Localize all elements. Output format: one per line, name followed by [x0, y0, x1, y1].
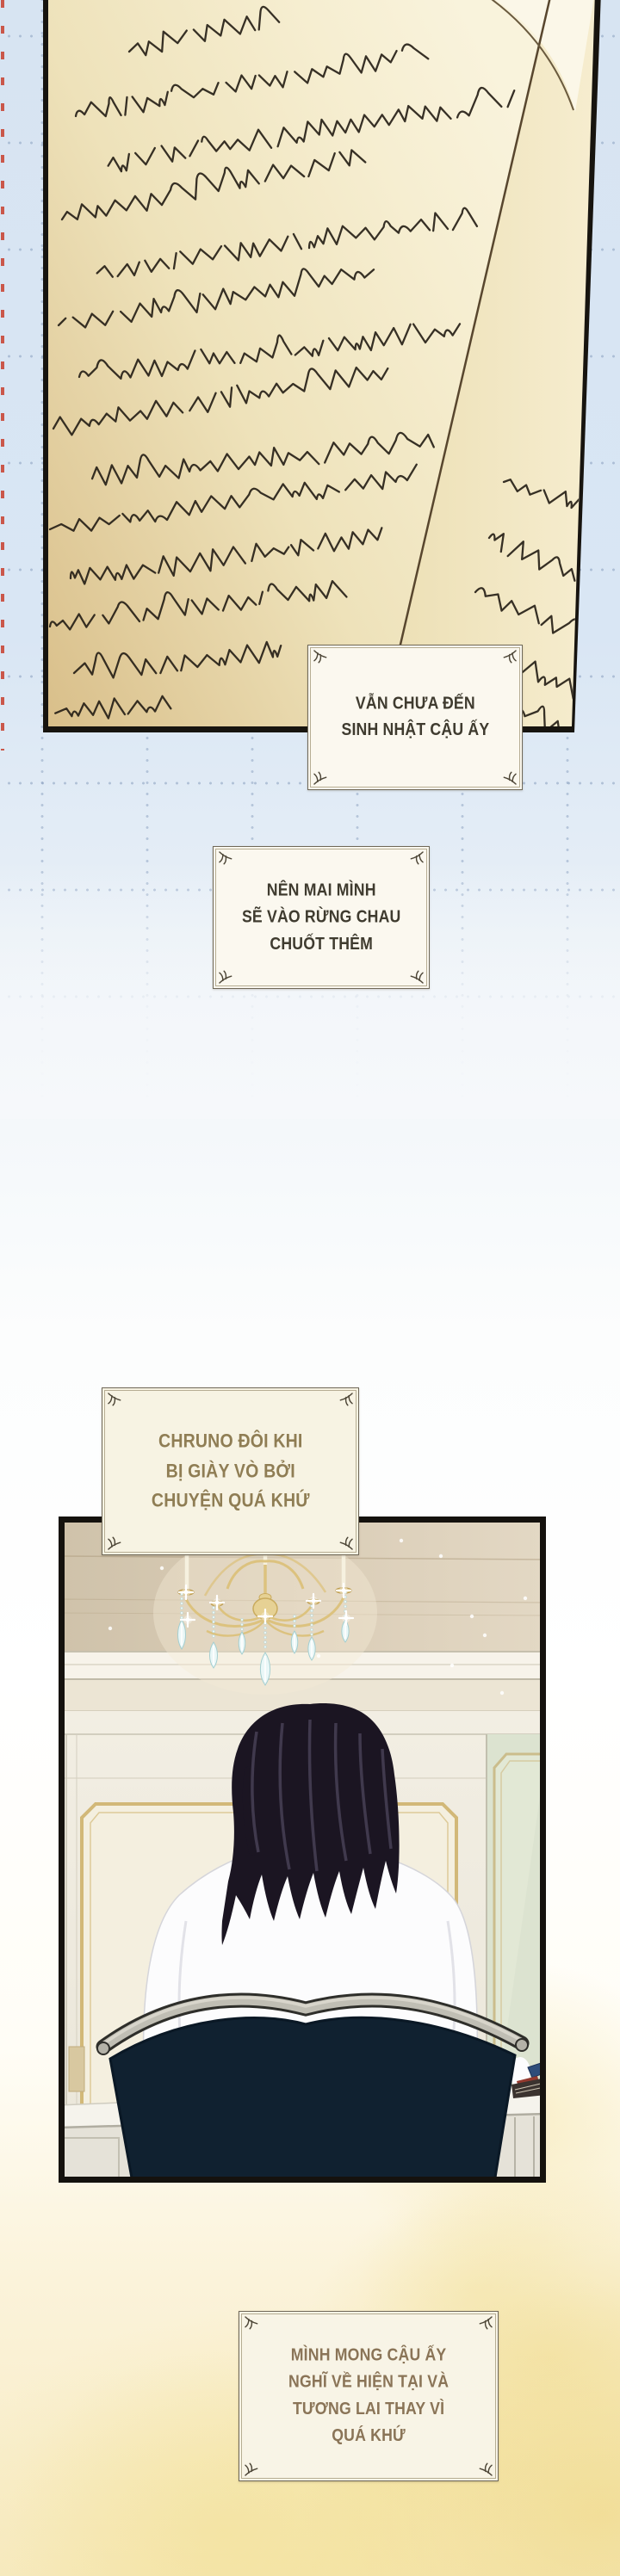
corner-flourish-icon — [218, 970, 232, 985]
caption-text: MÌNH MONG CẬU ẤY NGHĨ VỀ HIỆN TẠI VÀ TƯƠ… — [282, 2343, 455, 2450]
caption-text: NÊN MAI MÌNH SẼ VÀO RỪNG CHAU CHUỐT THÊM — [235, 877, 406, 958]
corner-flourish-icon — [339, 1536, 354, 1551]
room-illustration — [59, 1517, 546, 2183]
corner-flourish-icon — [479, 2315, 493, 2330]
corner-flourish-icon — [107, 1392, 121, 1406]
gold-pilaster — [69, 2047, 84, 2091]
caption-box-narration-1: CHRUNO ĐÔI KHI BỊ GIÀY VÒ BỞI CHUYỆN QUÁ… — [102, 1387, 359, 1555]
corner-flourish-icon — [339, 1392, 354, 1406]
corner-flourish-icon — [410, 970, 425, 985]
comic-page: VẪN CHƯA ĐẾN SINH NHẬT CẬU ẤY NÊN MAI MÌ… — [0, 0, 620, 2576]
corner-flourish-icon — [313, 649, 327, 664]
corner-flourish-icon — [313, 771, 327, 786]
corner-flourish-icon — [410, 850, 425, 865]
chandelier — [153, 1531, 377, 1695]
corner-flourish-icon — [503, 649, 518, 664]
caption-box-journal-1: VẪN CHƯA ĐẾN SINH NHẬT CẬU ẤY — [307, 645, 523, 790]
caption-box-narration-2: MÌNH MONG CẬU ẤY NGHĨ VỀ HIỆN TẠI VÀ TƯƠ… — [239, 2311, 499, 2481]
corner-flourish-icon — [244, 2462, 258, 2477]
caption-text: VẪN CHƯA ĐẾN SINH NHẬT CẬU ẤY — [335, 690, 496, 744]
comic-panel — [59, 1517, 546, 2183]
corner-flourish-icon — [244, 2315, 258, 2330]
corner-flourish-icon — [503, 771, 518, 786]
caption-box-journal-2: NÊN MAI MÌNH SẼ VÀO RỪNG CHAU CHUỐT THÊM — [213, 846, 430, 989]
caption-text: CHRUNO ĐÔI KHI BỊ GIÀY VÒ BỞI CHUYỆN QUÁ… — [145, 1427, 316, 1516]
journal-page — [0, 0, 620, 757]
corner-flourish-icon — [479, 2462, 493, 2477]
corner-flourish-icon — [107, 1536, 121, 1551]
corner-flourish-icon — [218, 850, 232, 865]
